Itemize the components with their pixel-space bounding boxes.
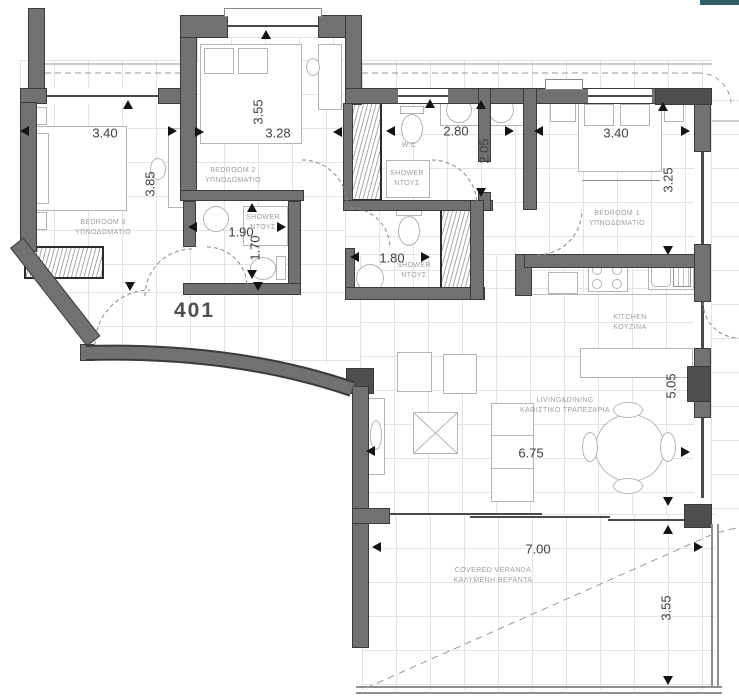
dimension-arrow	[372, 542, 381, 552]
dimension-arrow	[333, 127, 342, 137]
label-bedroom1: BEDROOM 1 ΥΠΝΟΔΩΜΑΤΙΟ	[589, 209, 645, 229]
label-bedroom3: BEDROOM 3 ΥΠΝΟΔΩΜΑΤΙΟ	[75, 218, 131, 238]
door-arc-bedroom1	[537, 210, 582, 255]
dimension-arrow	[366, 446, 375, 456]
veranda-dashed-line	[366, 528, 737, 688]
dimension-arrow	[425, 99, 435, 108]
dim-living-width: 6.75	[518, 446, 543, 461]
room-name: BEDROOM 2	[210, 167, 256, 174]
dimension-arrow	[188, 222, 197, 232]
room-name-alt: ΝΤΟΥΣ	[250, 224, 275, 231]
room-name-alt: ΝΤΟΥΣ	[401, 272, 426, 279]
label-veranda: COVERED VERANDA ΚΑΛΥΜΕΝΗ ΒΕΡΑΝΤΑ	[454, 566, 533, 586]
dimension-arrow	[658, 102, 668, 111]
room-name: LIVING&DINING	[536, 397, 593, 404]
dimension-arrow	[534, 126, 543, 136]
door-arc-exterior	[703, 302, 739, 338]
door-arc-entrance	[95, 290, 150, 345]
dimension-arrow	[261, 30, 271, 39]
dim-veranda-width: 7.00	[525, 542, 550, 557]
door-arc-ensuite	[350, 208, 390, 248]
room-name: SHOWER	[390, 170, 424, 177]
room-name-alt: ΚΟΥΖΙΝΑ	[613, 324, 646, 331]
dim-veranda-height: 3.55	[659, 595, 674, 620]
dim-bedroom1-height: 3.25	[661, 167, 676, 192]
dim-wc-height: 2.05	[477, 138, 492, 163]
dimension-arrow	[505, 126, 514, 136]
dimension-arrow	[663, 246, 673, 255]
dim-shower-hall-height: 1.70	[248, 235, 263, 260]
dim-bedroom3-width: 3.40	[92, 126, 117, 141]
floor-plan: 3.40 3.85 3.55 3.28 1.90 1.70 2.80 2.05 …	[0, 0, 739, 699]
room-name: COVERED VERANDA	[455, 567, 531, 574]
dim-bedroom1-width: 3.40	[603, 126, 628, 141]
dimension-arrow	[663, 525, 673, 534]
door-arc-bedroom2	[302, 160, 347, 205]
dimension-arrow	[168, 126, 177, 136]
label-wc-shower: SHOWER ΝΤΟΥΣ	[390, 169, 424, 189]
room-name: BEDROOM 3	[80, 219, 126, 226]
door-arc-bedroom3	[145, 249, 192, 296]
label-wc: W.C	[402, 141, 416, 151]
dimension-arrow	[663, 676, 673, 685]
dimension-arrow	[694, 542, 703, 552]
label-shower-hall: SHOWER ΝΤΟΥΣ	[246, 213, 280, 233]
room-name-alt: ΝΤΟΥΣ	[394, 180, 419, 187]
plan-overlay	[0, 0, 739, 699]
dimension-arrow	[253, 282, 263, 291]
label-kitchen: KITCHEN ΚΟΥΖΙΝΑ	[613, 313, 647, 333]
dim-bedroom2-width: 3.28	[265, 126, 290, 141]
dimension-arrow	[125, 282, 135, 291]
label-bedroom2: BEDROOM 2 ΥΠΝΟΔΩΜΑΤΙΟ	[205, 166, 261, 186]
room-name: W.C	[402, 142, 416, 149]
label-ensuite-shower: SHOWER ΝΤΟΥΣ	[397, 261, 431, 281]
room-name-alt: ΚΑΘΙΣΤΙΚΟ ΤΡΑΠΕΖΑΡΙΑ	[520, 407, 610, 414]
door-arc-shower-hall	[207, 247, 247, 289]
dimension-arrow	[195, 127, 204, 137]
dim-bedroom2-height: 3.55	[251, 99, 266, 124]
construction-arc	[698, 73, 731, 103]
room-name: BEDROOM 1	[594, 210, 640, 217]
dimension-arrow	[476, 100, 486, 109]
coffee-table-x	[414, 413, 457, 453]
dimension-arrow	[247, 270, 257, 279]
dim-bedroom3-height: 3.85	[143, 171, 158, 196]
accent-bar	[700, 0, 739, 5]
room-name: SHOWER	[397, 262, 431, 269]
dimension-arrow	[663, 497, 673, 506]
dim-living-height: 5.05	[664, 373, 679, 398]
dimension-arrow	[350, 252, 359, 262]
dimension-arrow	[123, 100, 133, 109]
dimension-arrow	[681, 447, 690, 457]
dimension-arrow	[386, 126, 395, 136]
room-name: KITCHEN	[613, 314, 647, 321]
room-name: SHOWER	[246, 214, 280, 221]
room-name-alt: ΥΠΝΟΔΩΜΑΤΙΟ	[205, 177, 261, 184]
label-living: LIVING&DINING ΚΑΘΙΣΤΙΚΟ ΤΡΑΠΕΖΑΡΙΑ	[520, 396, 610, 416]
dimension-arrow	[20, 126, 29, 136]
room-name-alt: ΥΠΝΟΔΩΜΑΤΙΟ	[75, 229, 131, 236]
room-name-alt: ΚΑΛΥΜΕΝΗ ΒΕΡΑΝΤΑ	[454, 577, 533, 584]
dim-wc-width: 2.80	[443, 124, 468, 139]
unit-number: 401	[174, 299, 215, 323]
door-arc-wc	[432, 160, 477, 205]
dimension-arrow	[681, 126, 690, 136]
room-name-alt: ΥΠΝΟΔΩΜΑΤΙΟ	[589, 220, 645, 227]
dimension-arrow	[247, 203, 257, 212]
dimension-arrow	[476, 188, 486, 197]
